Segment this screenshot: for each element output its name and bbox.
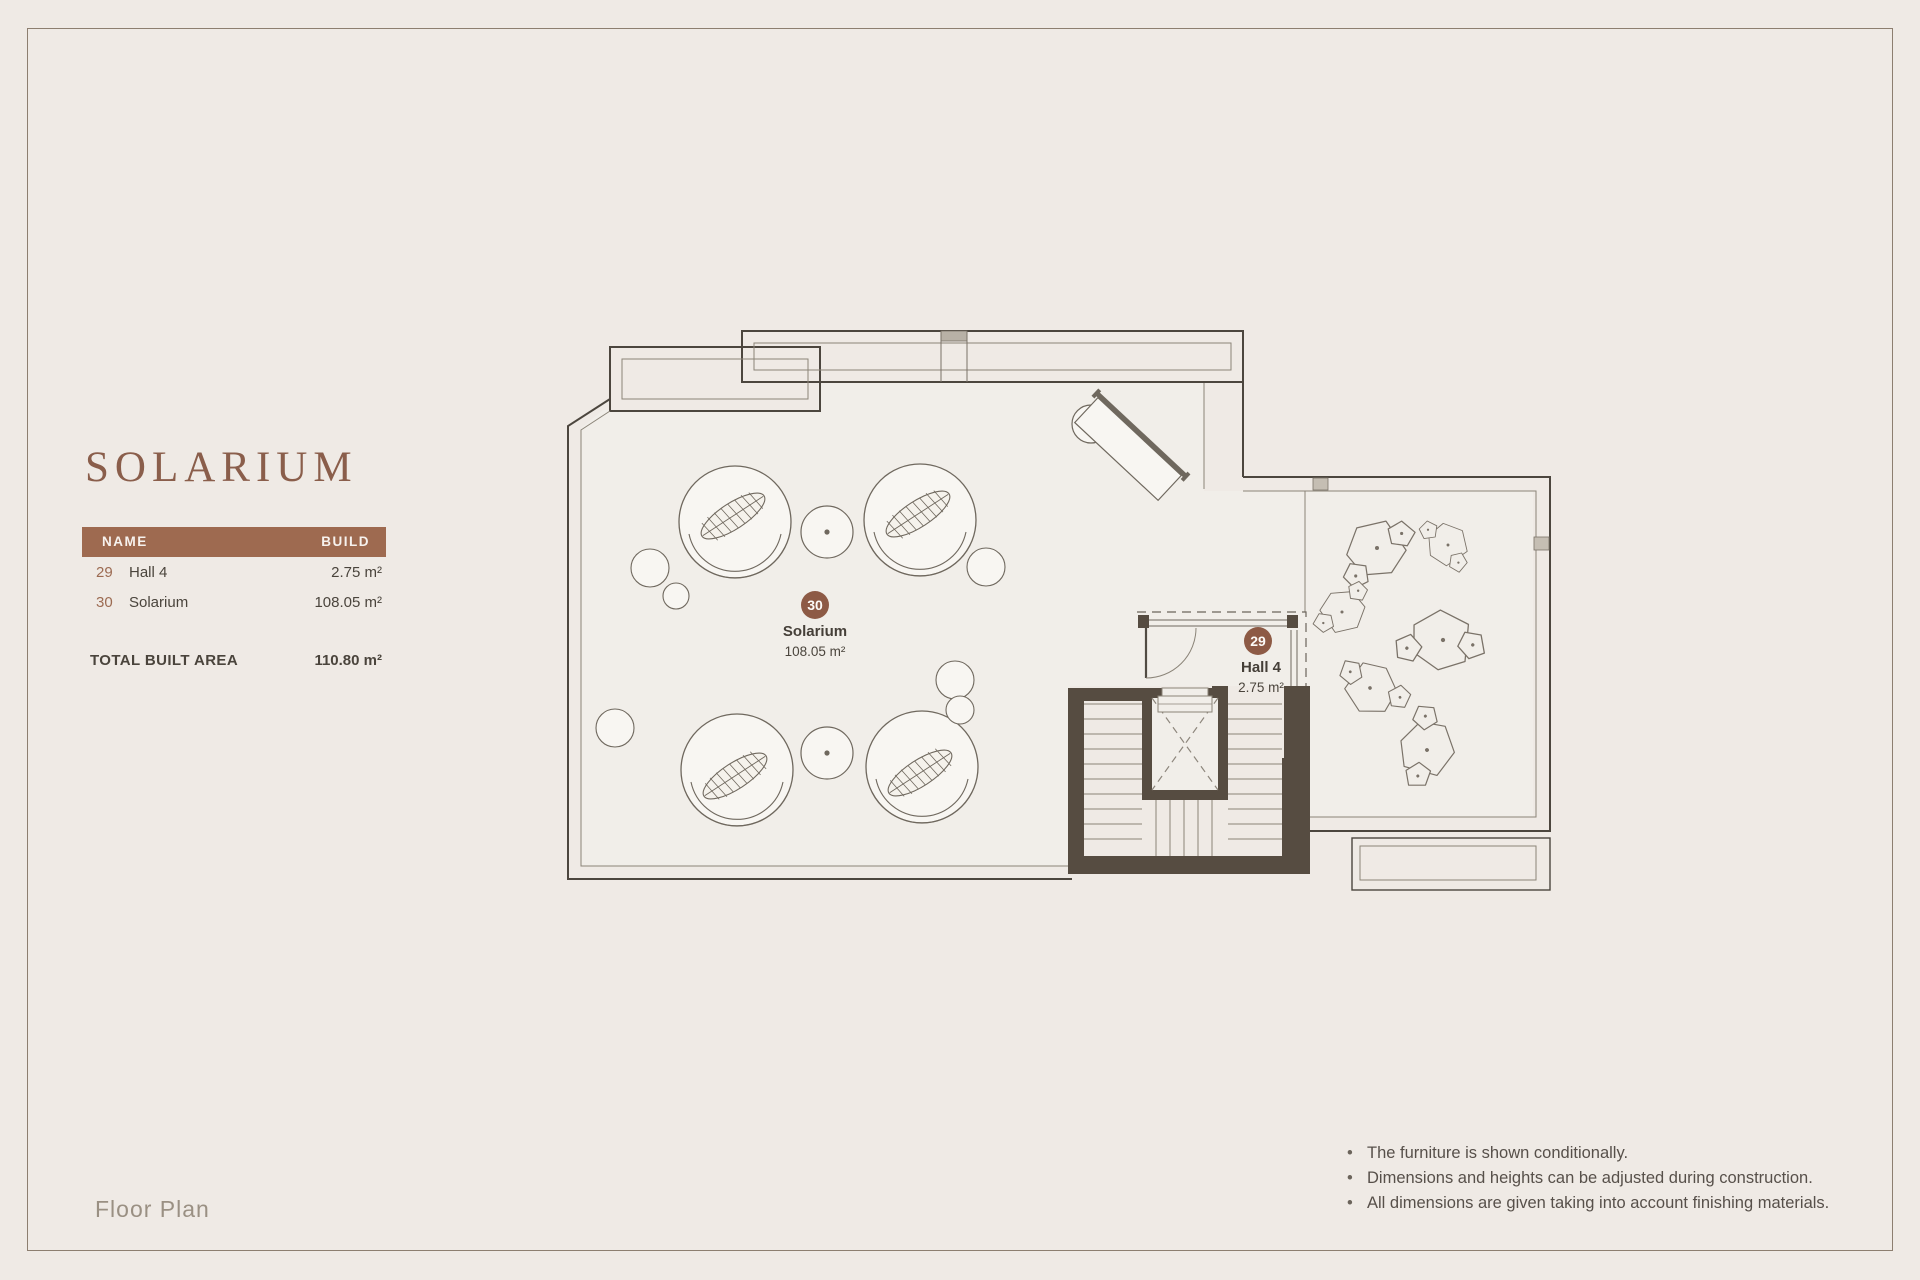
header-name: NAME: [102, 527, 148, 557]
bullet-icon: •: [1347, 1191, 1367, 1216]
row-number: 29: [96, 564, 129, 581]
daybed: [866, 711, 978, 823]
info-panel: SOLARIUM NAME BUILD 29 Hall 4 2.75 m² 30…: [82, 444, 386, 675]
note-text: The furniture is shown conditionally.: [1367, 1141, 1628, 1166]
bullet-icon: •: [1347, 1166, 1367, 1191]
bullet-icon: •: [1347, 1141, 1367, 1166]
table-row: 30 Solarium 108.05 m²: [82, 587, 386, 617]
side-table: [801, 727, 853, 779]
room-name: Solarium: [783, 623, 847, 640]
table-row: 29 Hall 4 2.75 m²: [82, 557, 386, 587]
daybed: [864, 464, 976, 576]
room-area: 2.75 m²: [1238, 680, 1284, 695]
note-text: Dimensions and heights can be adjusted d…: [1367, 1166, 1813, 1191]
floor-plan-caption: Floor Plan: [95, 1196, 210, 1223]
total-value: 110.80 m²: [314, 652, 382, 669]
room-name: Hall 4: [1241, 659, 1282, 676]
daybed: [681, 714, 793, 826]
note-text: All dimensions are given taking into acc…: [1367, 1191, 1829, 1216]
notes-list: • The furniture is shown conditionally. …: [1347, 1141, 1829, 1216]
note-item: • All dimensions are given taking into a…: [1347, 1191, 1829, 1216]
partition-post: [1138, 615, 1149, 628]
row-name: Hall 4: [129, 564, 167, 581]
row-area: 108.05 m²: [314, 594, 382, 611]
page-title: SOLARIUM: [85, 444, 386, 492]
header-build: BUILD: [321, 527, 370, 557]
area-table-header: NAME BUILD: [82, 527, 386, 557]
partition-post: [1287, 615, 1298, 628]
daybed: [679, 466, 791, 578]
room-number: 30: [807, 597, 823, 613]
room-area: 108.05 m²: [785, 644, 846, 659]
note-item: • The furniture is shown conditionally.: [1347, 1141, 1829, 1166]
side-table: [801, 506, 853, 558]
total-label: TOTAL BUILT AREA: [90, 652, 238, 669]
note-item: • Dimensions and heights can be adjusted…: [1347, 1166, 1829, 1191]
row-name: Solarium: [129, 594, 188, 611]
row-number: 30: [96, 594, 129, 611]
total-built-area-row: TOTAL BUILT AREA 110.80 m²: [82, 645, 386, 675]
room-number: 29: [1250, 633, 1266, 649]
row-area: 2.75 m²: [331, 564, 382, 581]
stair-core: [1068, 686, 1310, 874]
